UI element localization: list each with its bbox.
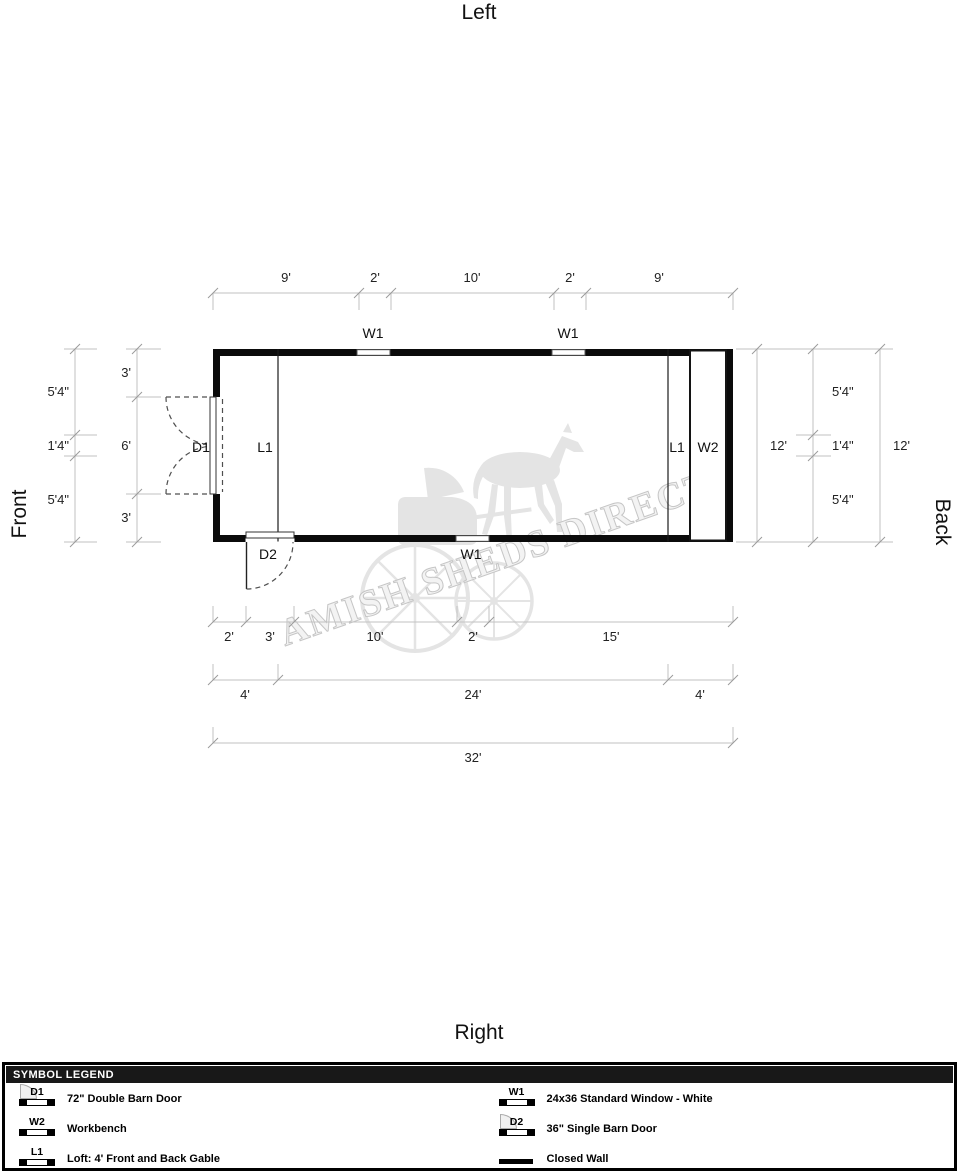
double-barn-door-symbol: D1: [19, 1086, 55, 1108]
dim-bottom1-2: 10': [367, 629, 384, 644]
dim-bottom2-2: 4': [695, 687, 705, 702]
label-l1-left: L1: [257, 439, 273, 455]
symbol-legend-header: SYMBOL LEGEND: [6, 1066, 953, 1083]
dim-bottom1-1: 3': [265, 629, 275, 644]
legend-label: Loft: 4' Front and Back Gable: [67, 1146, 220, 1165]
dim-left-outer-2: 5'4": [47, 492, 69, 507]
dim-top-0: 9': [281, 270, 291, 285]
label-d2: D2: [259, 546, 277, 562]
door-bar-glyph: [19, 1099, 55, 1106]
legend-item-d1: D1 72" Double Barn Door: [19, 1084, 487, 1114]
label-w1-bottom: W1: [461, 546, 482, 562]
legend-item-w1: W1 24x36 Standard Window - White: [499, 1084, 955, 1114]
floor-plan-page: AMISH SHEDS DIRECT: [0, 0, 959, 1174]
legend-label: 24x36 Standard Window - White: [547, 1086, 713, 1105]
door-d2-panel: [246, 532, 294, 538]
legend-code: W1: [509, 1086, 525, 1098]
window-w1-top-right: [552, 350, 585, 356]
legend-item-l1: L1 Loft: 4' Front and Back Gable: [19, 1144, 487, 1174]
dim-left-outer-1: 1'4": [47, 438, 69, 453]
dim-top-4: 9': [654, 270, 664, 285]
legend-label: Closed Wall: [547, 1146, 609, 1165]
dim-right-inner-total: 12': [770, 438, 787, 453]
orientation-bottom: Right: [454, 1021, 503, 1044]
orientation-right: Back: [931, 499, 954, 546]
legend-code: L1: [31, 1146, 43, 1158]
legend-label: 36" Single Barn Door: [547, 1116, 657, 1135]
dim-bottom2-0: 4': [240, 687, 250, 702]
legend-column-left: D1 72" Double Barn Door W2 Workbench L1 …: [19, 1084, 487, 1174]
window-bar-glyph: [19, 1159, 55, 1166]
dim-bottom1-4: 15': [603, 629, 620, 644]
window-bar-glyph: [19, 1129, 55, 1136]
loft-symbol: L1: [19, 1146, 55, 1168]
door-bar-glyph: [499, 1129, 535, 1136]
orientation-labels: Left Right Front Back: [8, 1, 954, 1044]
dim-bottom1-3: 2': [468, 629, 478, 644]
dim-right-mid-2: 5'4": [832, 492, 854, 507]
legend-label: Workbench: [67, 1116, 127, 1135]
dim-left-inner-0: 3': [121, 365, 131, 380]
legend-code: D2: [510, 1116, 523, 1128]
dim-bottom2-1: 24': [465, 687, 482, 702]
door-d1-panel: [210, 397, 216, 494]
dim-right-mid-0: 5'4": [832, 384, 854, 399]
legend-item-closed-wall: Closed Wall: [499, 1144, 955, 1174]
floor-plan-drawing: AMISH SHEDS DIRECT: [0, 0, 959, 1174]
label-l1-right: L1: [669, 439, 685, 455]
legend-item-d2: D2 36" Single Barn Door: [499, 1114, 955, 1144]
legend-code: W2: [29, 1116, 45, 1128]
label-w1-top-left: W1: [363, 325, 384, 341]
dim-left-outer-0: 5'4": [47, 384, 69, 399]
dim-left-inner-1: 6': [121, 438, 131, 453]
window-bar-glyph: [499, 1099, 535, 1106]
dim-bottom-total: 32': [465, 750, 482, 765]
legend-label: 72" Double Barn Door: [67, 1086, 182, 1105]
closed-wall-symbol: [499, 1146, 535, 1168]
dim-right-outer-total: 12': [893, 438, 910, 453]
window-symbol: W1: [499, 1086, 535, 1108]
dim-top-2: 10': [464, 270, 481, 285]
orientation-top: Left: [461, 1, 496, 24]
orientation-left: Front: [8, 489, 31, 538]
label-d1: D1: [192, 439, 210, 455]
workbench-symbol: W2: [19, 1116, 55, 1138]
dim-right-mid-1: 1'4": [832, 438, 854, 453]
dim-left-inner-2: 3': [121, 510, 131, 525]
dim-top-1: 2': [370, 270, 380, 285]
window-w1-bottom: [456, 536, 489, 542]
dim-top-3: 2': [565, 270, 575, 285]
legend-code: D1: [30, 1086, 43, 1098]
symbol-legend: SYMBOL LEGEND D1 72" Double Barn Door W2…: [2, 1062, 957, 1171]
legend-column-right: W1 24x36 Standard Window - White D2 36" …: [487, 1084, 955, 1174]
dim-bottom1-0: 2': [224, 629, 234, 644]
window-w1-top-left: [357, 350, 390, 356]
closed-wall-glyph: [499, 1159, 533, 1164]
label-w2: W2: [698, 439, 719, 455]
label-w1-top-right: W1: [558, 325, 579, 341]
legend-item-w2: W2 Workbench: [19, 1114, 487, 1144]
single-barn-door-symbol: D2: [499, 1116, 535, 1138]
